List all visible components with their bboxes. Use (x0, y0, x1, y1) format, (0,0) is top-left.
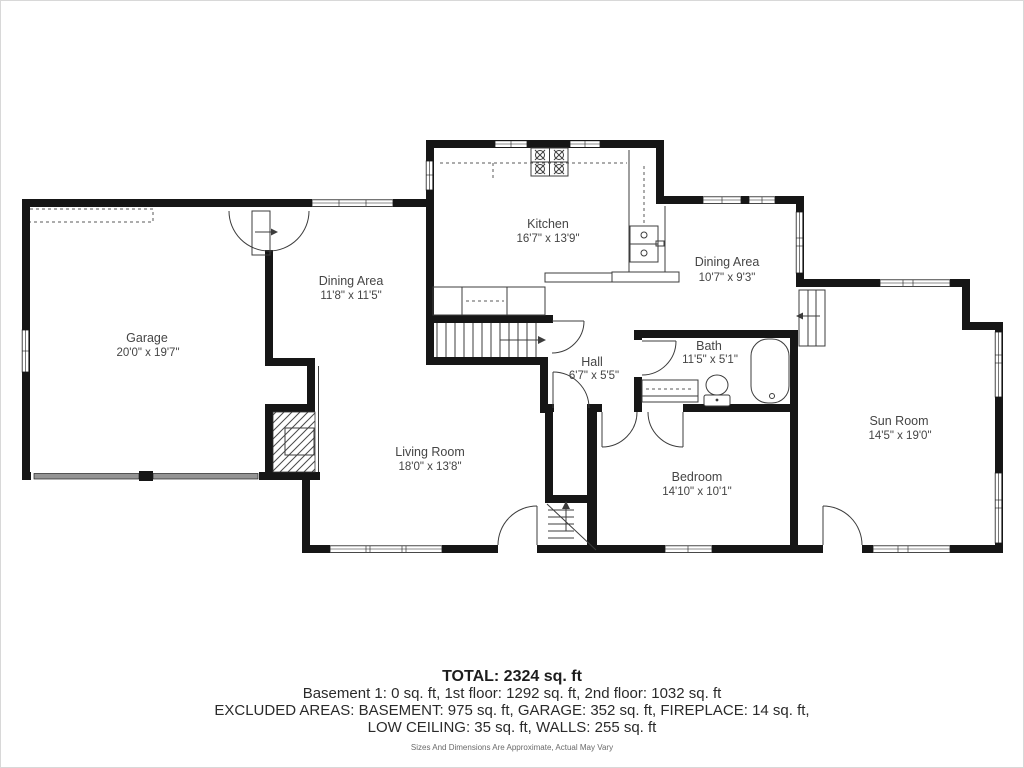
total-area-text: TOTAL: 2324 sq. ft (0, 668, 1024, 685)
room-label-living-room: Living Room (395, 445, 464, 459)
floor-plan-page: Garage 20'0" x 19'7" Dining Area 11'8" x… (0, 0, 1024, 768)
door-arc-living-exterior (498, 506, 537, 545)
room-label-sun-room: Sun Room (869, 414, 928, 428)
garage-doors (31, 471, 259, 481)
room-dims-living-room: 18'0" x 13'8" (398, 461, 461, 473)
room-label-bedroom: Bedroom (672, 470, 723, 484)
door-arc-garage-entry (229, 211, 309, 255)
excluded-areas-text-2: LOW CEILING: 35 sq. ft, WALLS: 255 sq. f… (0, 719, 1024, 736)
garage-storage-outline (30, 209, 153, 222)
area-summary: TOTAL: 2324 sq. ft Basement 1: 0 sq. ft,… (0, 668, 1024, 752)
window (665, 546, 712, 553)
door-arc-bath (642, 341, 676, 375)
window (330, 546, 442, 553)
window (22, 330, 29, 372)
window (495, 141, 527, 148)
floor-areas-text: Basement 1: 0 sq. ft, 1st floor: 1292 sq… (0, 685, 1024, 702)
room-dims-sun-room: 14'5" x 19'0" (868, 430, 931, 442)
room-dims-dining-left: 11'8" x 11'5" (320, 290, 381, 302)
door-arc-stairs-hall (552, 321, 584, 353)
door-arc-sunroom (823, 506, 862, 545)
window (703, 197, 741, 204)
window (570, 141, 600, 148)
room-label-garage: Garage (126, 331, 168, 345)
kitchen-fixtures (440, 148, 665, 272)
disclaimer-text: Sizes And Dimensions Are Approximate, Ac… (0, 743, 1024, 752)
room-dims-bath: 11'5" x 5'1" (682, 354, 738, 366)
window (880, 280, 950, 287)
room-label-hall: Hall (581, 355, 603, 369)
room-label-kitchen: Kitchen (527, 217, 569, 231)
back-entry-steps (796, 290, 825, 346)
room-dims-garage: 20'0" x 19'7" (116, 347, 179, 359)
room-dims-bedroom: 14'10" x 10'1" (662, 486, 731, 498)
vanity (642, 380, 698, 402)
room-label-dining-left: Dining Area (319, 274, 384, 288)
window (796, 212, 803, 273)
room-dims-dining-right: 10'7" x 9'3" (699, 272, 756, 284)
room-dims-hall: 6'7" x 5'5" (569, 370, 619, 382)
door-arc-bedroom-left (602, 412, 637, 447)
floor-plan: Garage 20'0" x 19'7" Dining Area 11'8" x… (0, 0, 1024, 660)
excluded-areas-text-1: EXCLUDED AREAS: BASEMENT: 975 sq. ft, GA… (0, 702, 1024, 719)
room-dims-kitchen: 16'7" x 13'9" (516, 233, 579, 245)
window (873, 546, 950, 553)
stove (531, 148, 568, 176)
bathtub (751, 339, 789, 403)
stairs-up-arrow (538, 336, 546, 344)
window (312, 200, 393, 207)
room-label-bath: Bath (696, 339, 722, 353)
window (749, 197, 775, 204)
window (995, 332, 1002, 397)
staircase-up (433, 272, 679, 357)
toilet (704, 375, 730, 406)
kitchen-sink (630, 226, 664, 262)
door-arc-bedroom-right (648, 412, 683, 447)
room-label-dining-right: Dining Area (695, 255, 760, 269)
window (995, 473, 1002, 543)
window (426, 161, 433, 190)
